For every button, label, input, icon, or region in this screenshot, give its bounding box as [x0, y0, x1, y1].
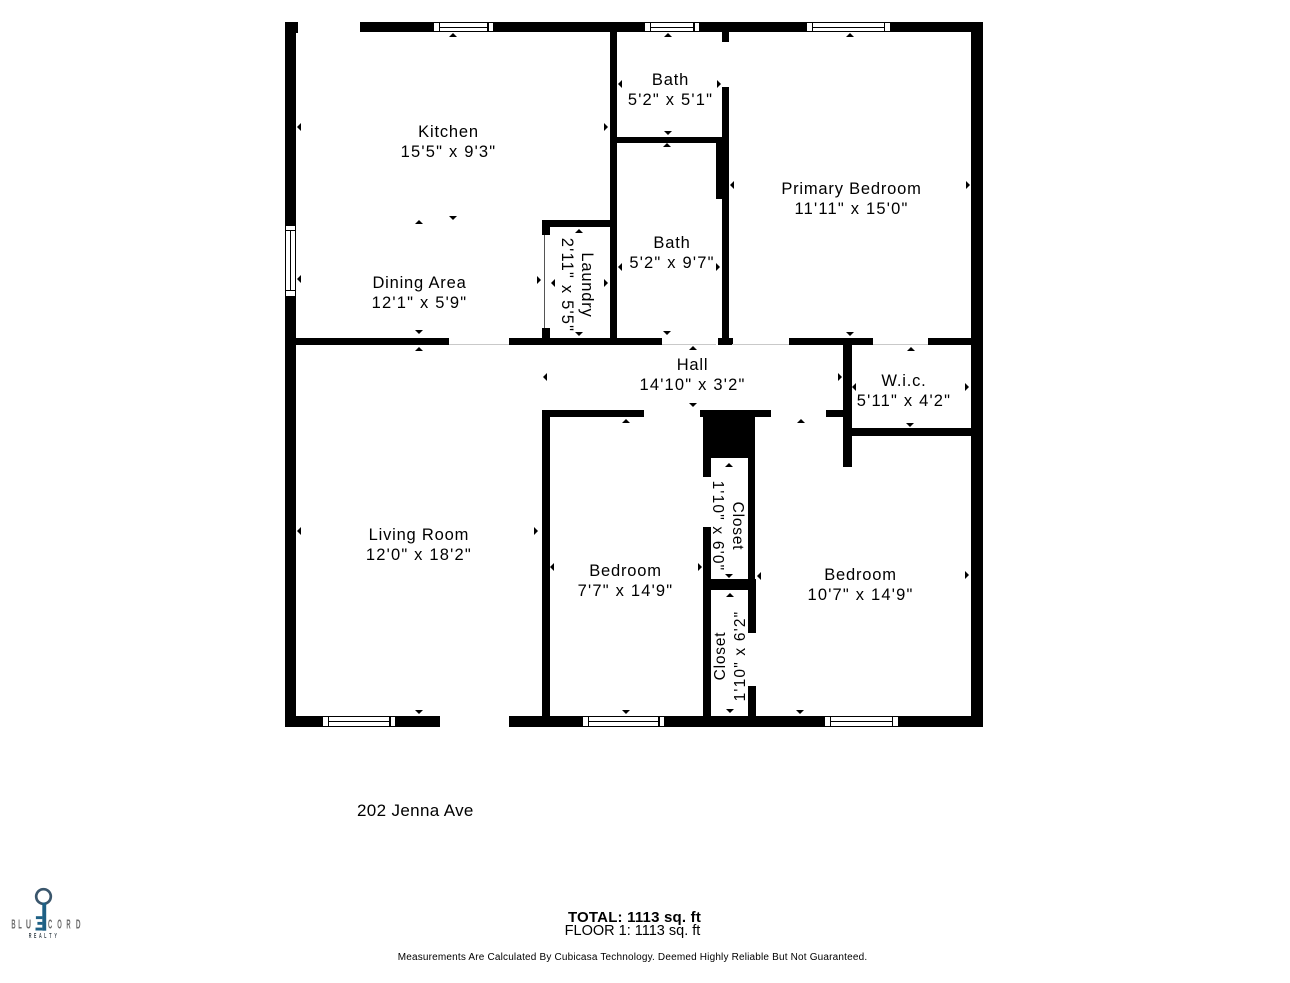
- svg-text:R: R: [29, 933, 32, 941]
- svg-text:L: L: [18, 918, 22, 932]
- svg-text:E: E: [34, 933, 37, 941]
- svg-text:L: L: [44, 933, 47, 941]
- svg-text:Y: Y: [54, 933, 57, 941]
- svg-text:O: O: [57, 918, 62, 932]
- svg-text:D: D: [76, 918, 81, 932]
- svg-text:B: B: [11, 918, 15, 932]
- svg-text:R: R: [66, 918, 71, 932]
- svg-text:A: A: [39, 933, 42, 941]
- svg-text:U: U: [26, 918, 31, 932]
- svg-text:C: C: [48, 918, 52, 932]
- svg-text:T: T: [49, 933, 52, 941]
